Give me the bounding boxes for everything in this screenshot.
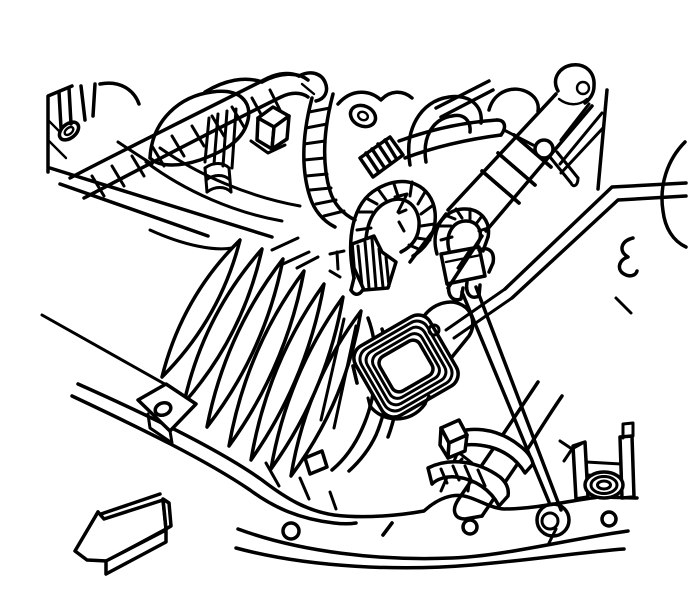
engine-assembly (48, 74, 308, 249)
direction-arrow (75, 494, 171, 574)
panel-seam-line (42, 315, 170, 387)
bolt-head (251, 107, 289, 153)
electrical-connector (347, 101, 578, 185)
illustration-canvas (0, 0, 688, 612)
rail-hole (463, 520, 477, 534)
striped-bracket (330, 236, 396, 290)
hose-clamp (428, 420, 533, 506)
technical-illustration (0, 0, 688, 612)
rail-hole (283, 523, 299, 539)
rail-hole (602, 512, 616, 526)
grommet-bracket (560, 423, 634, 499)
